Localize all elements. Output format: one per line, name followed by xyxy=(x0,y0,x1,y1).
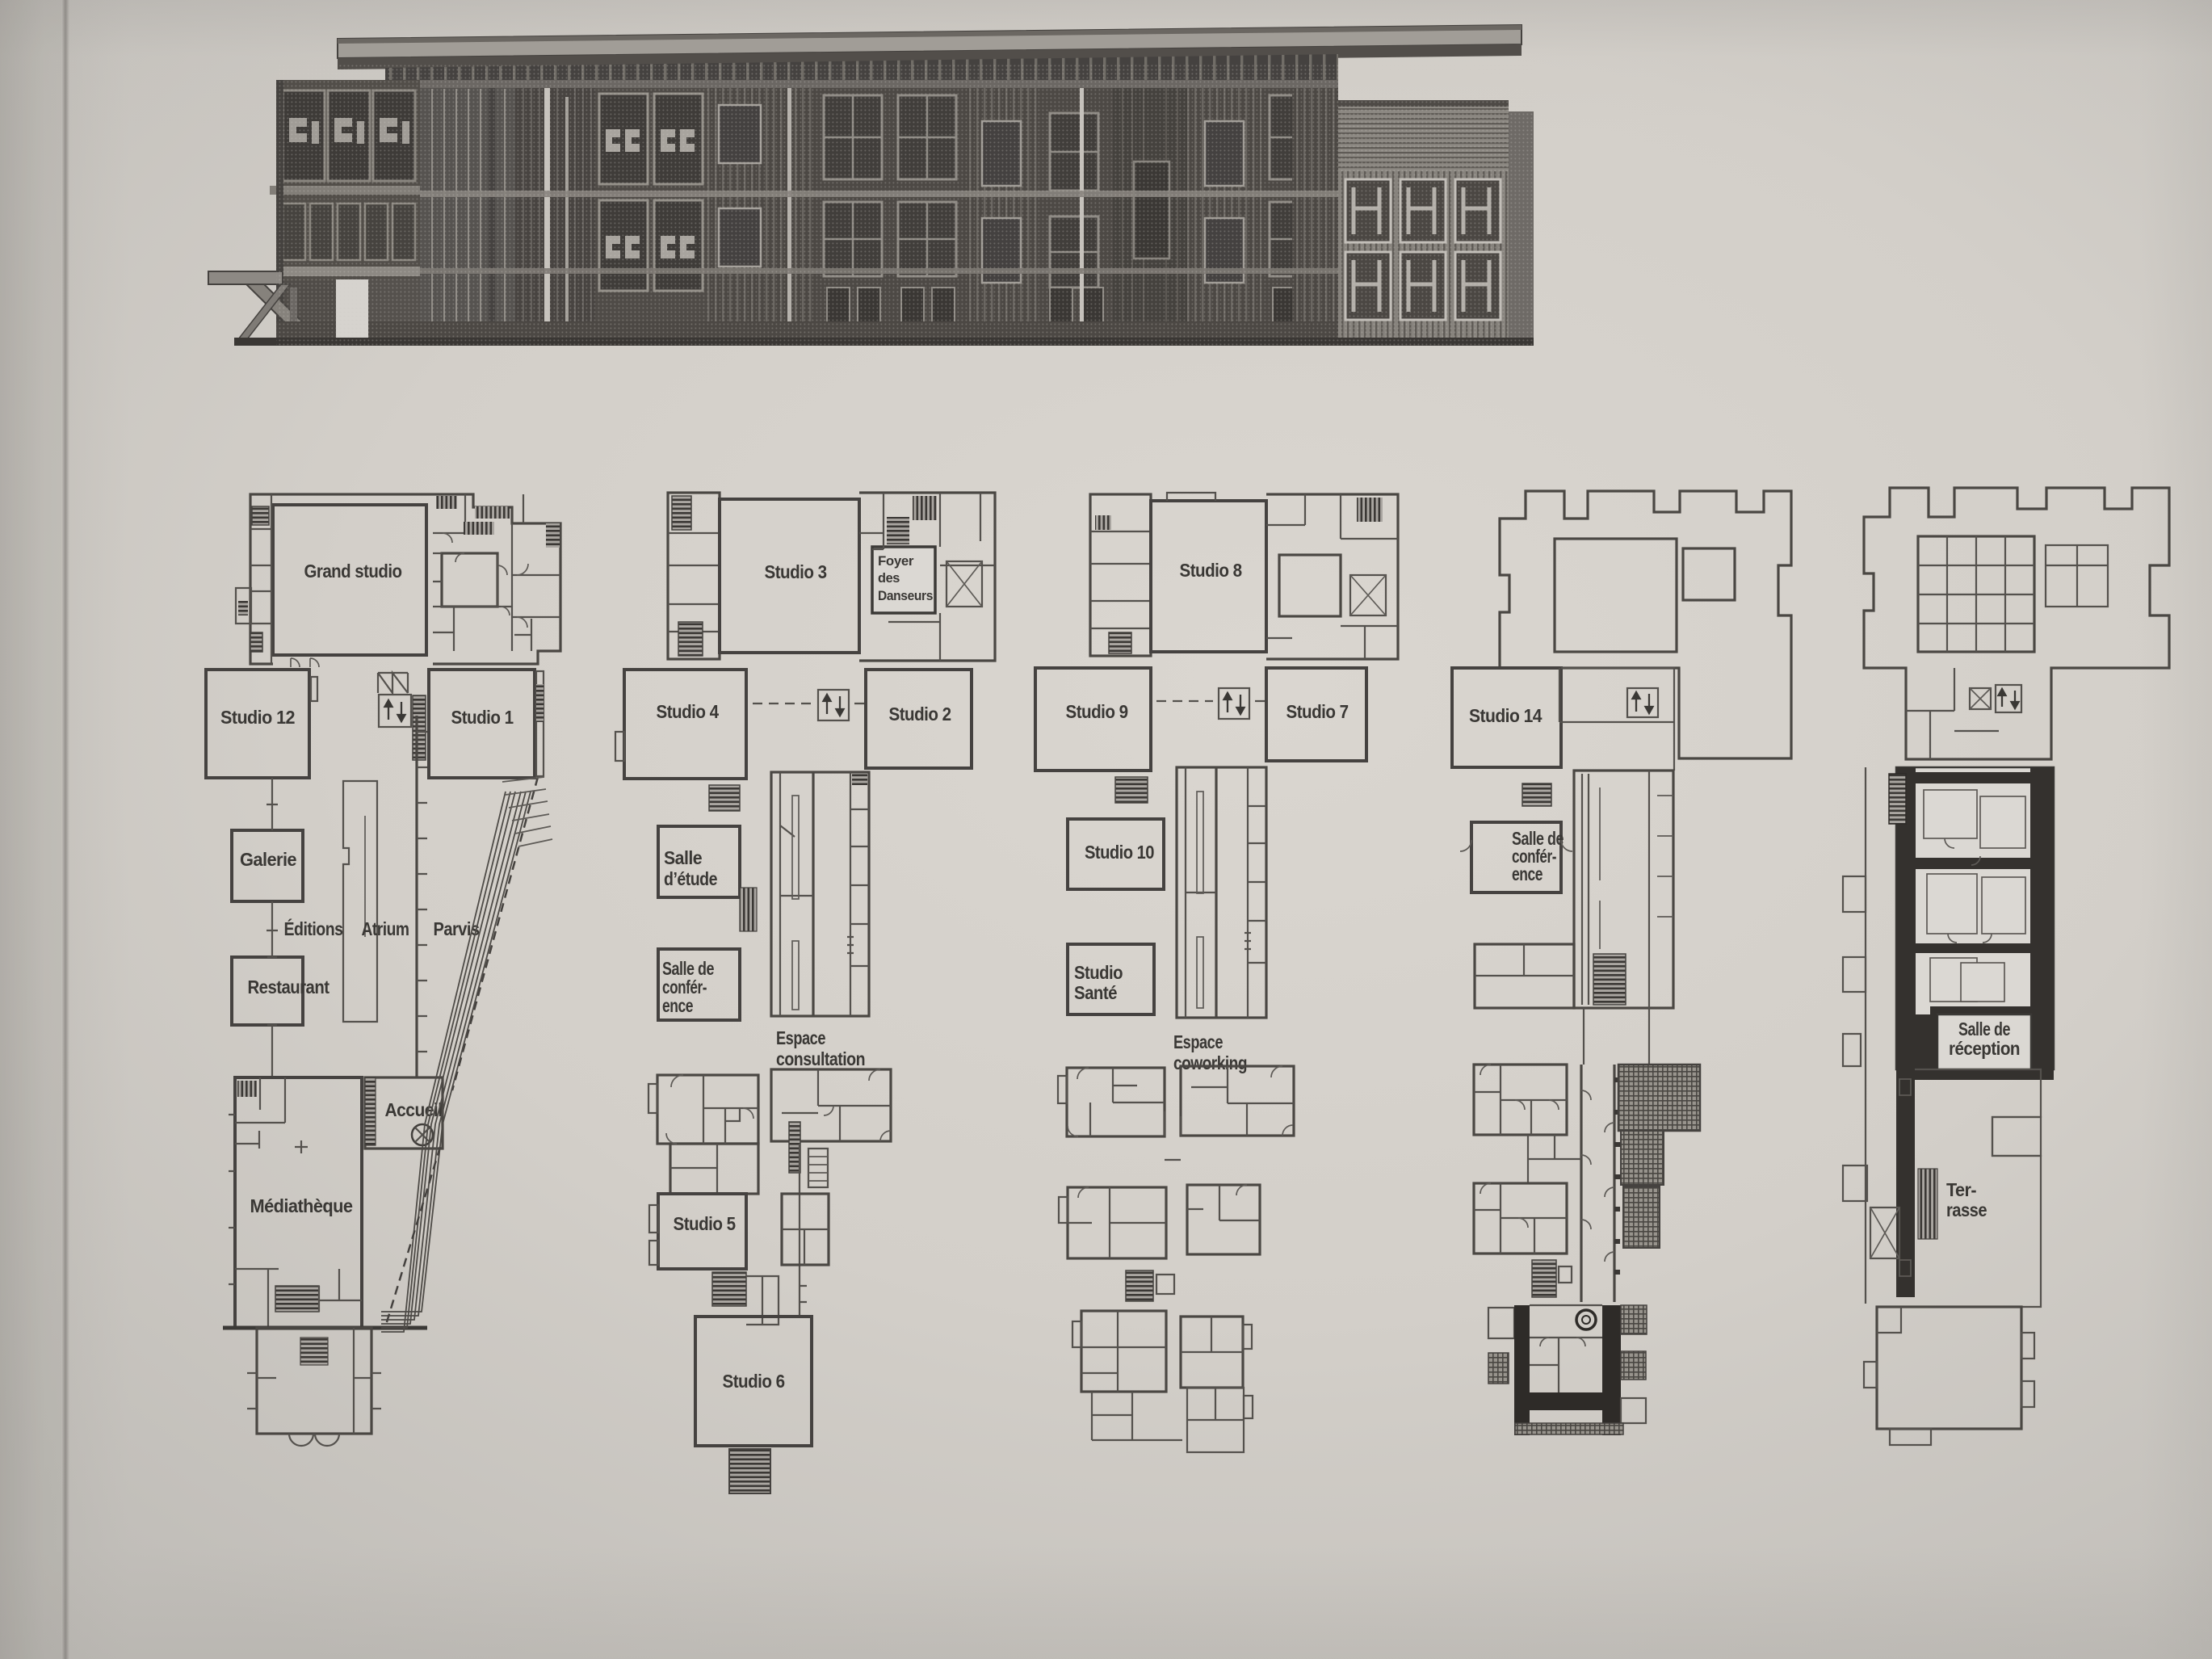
svg-text:Studio 4: Studio 4 xyxy=(657,701,720,722)
svg-text:Studio: Studio xyxy=(1074,962,1123,983)
svg-text:Studio 9: Studio 9 xyxy=(1066,701,1128,722)
svg-text:Studio 1: Studio 1 xyxy=(451,707,514,728)
svg-text:réception: réception xyxy=(1949,1038,2020,1059)
svg-text:Galerie: Galerie xyxy=(240,849,296,870)
svg-text:Studio 14: Studio 14 xyxy=(1469,705,1543,726)
svg-text:Danseurs: Danseurs xyxy=(878,588,933,603)
svg-text:Grand studio: Grand studio xyxy=(304,561,402,582)
svg-text:des: des xyxy=(878,570,900,586)
svg-text:Salle: Salle xyxy=(664,847,702,868)
svg-text:Espace: Espace xyxy=(776,1027,825,1048)
svg-text:Restaurant: Restaurant xyxy=(248,976,330,997)
svg-text:Foyer: Foyer xyxy=(878,553,914,569)
svg-text:coworking: coworking xyxy=(1173,1052,1247,1073)
svg-text:ence: ence xyxy=(1512,863,1543,884)
svg-text:Éditions: Éditions xyxy=(284,918,343,939)
svg-text:Studio 12: Studio 12 xyxy=(220,707,295,728)
svg-text:Studio 3: Studio 3 xyxy=(765,561,827,582)
svg-text:rasse: rasse xyxy=(1946,1199,1987,1220)
svg-text:Ter-: Ter- xyxy=(1946,1179,1976,1200)
svg-text:Espace: Espace xyxy=(1173,1031,1223,1052)
svg-text:Studio 6: Studio 6 xyxy=(723,1371,785,1392)
svg-text:ence: ence xyxy=(662,995,693,1016)
svg-text:Salle de: Salle de xyxy=(1958,1018,2010,1039)
svg-text:Studio 2: Studio 2 xyxy=(889,703,951,724)
svg-text:consultation: consultation xyxy=(776,1048,865,1069)
svg-text:Santé: Santé xyxy=(1074,982,1117,1003)
svg-text:Atrium: Atrium xyxy=(362,918,409,939)
svg-text:Médiathèque: Médiathèque xyxy=(250,1195,353,1216)
svg-text:d’étude: d’étude xyxy=(664,868,717,889)
svg-text:Studio 10: Studio 10 xyxy=(1085,842,1154,863)
svg-text:Studio 8: Studio 8 xyxy=(1180,560,1243,581)
svg-text:Studio 7: Studio 7 xyxy=(1286,701,1349,722)
svg-text:Studio 5: Studio 5 xyxy=(674,1213,737,1234)
